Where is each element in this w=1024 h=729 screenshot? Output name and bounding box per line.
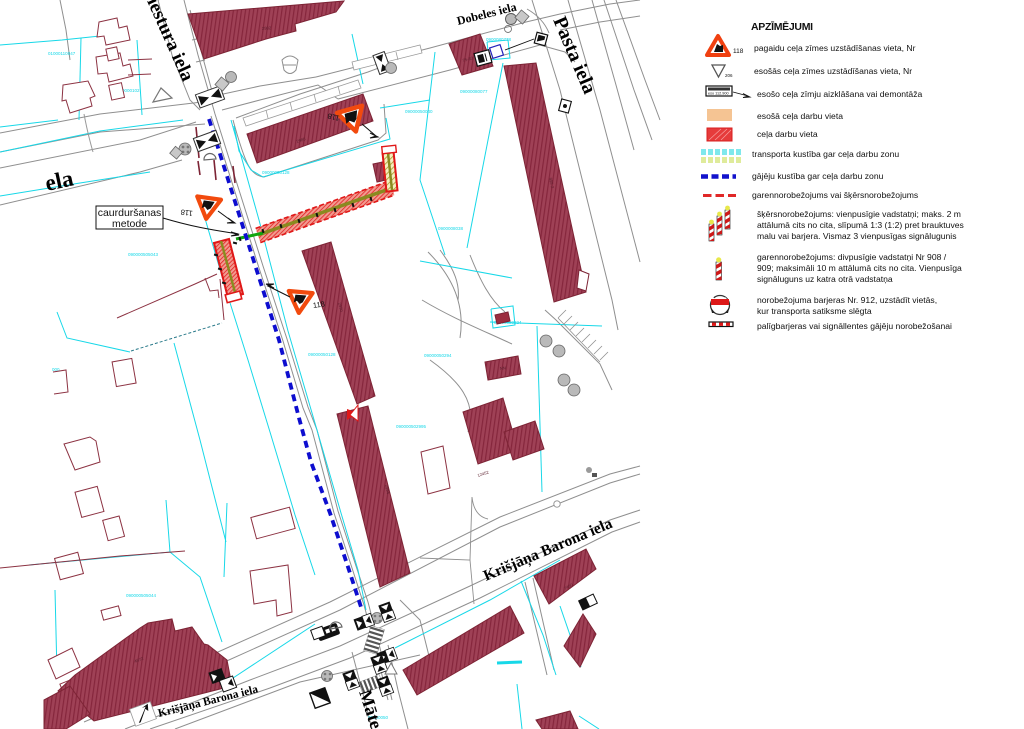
svg-text:909; maksimāli 10 m attālumā c: 909; maksimāli 10 m attālumā cits no cit… bbox=[757, 263, 962, 273]
svg-text:gājēju kustība gar ceļa darbu: gājēju kustība gar ceļa darbu zonu bbox=[752, 171, 884, 181]
svg-text:esošās ceļa zīmes uzstādīšanas: esošās ceļa zīmes uzstādīšanas vieta, Nr bbox=[754, 66, 912, 76]
svg-text:pagaidu ceļa zīmes uzstādīšana: pagaidu ceļa zīmes uzstādīšanas vieta, N… bbox=[754, 43, 916, 53]
svg-text:090000505043: 090000505043 bbox=[128, 252, 159, 257]
svg-text:kur transporta satiksme slēgta: kur transporta satiksme slēgta bbox=[757, 306, 872, 316]
svg-text:09000050128: 09000050128 bbox=[262, 170, 290, 175]
svg-text:09000050294: 09000050294 bbox=[424, 353, 452, 358]
svg-text:APZĪMĒJUMI: APZĪMĒJUMI bbox=[751, 21, 813, 33]
svg-text:šķērsnorobežojums: vienpusīgie: šķērsnorobežojums: vienpusīgie vadstatņi… bbox=[757, 209, 961, 219]
svg-text:malu vai barjera. Vismaz 3 vie: malu vai barjera. Vismaz 3 vienpusīgas s… bbox=[757, 231, 957, 241]
svg-text:norobežojuma barjeras Nr. 912,: norobežojuma barjeras Nr. 912, uzstādīt … bbox=[757, 295, 937, 305]
svg-text:09000080077: 09000080077 bbox=[460, 89, 488, 94]
svg-text:transporta kustība gar ceļa da: transporta kustība gar ceļa darbu zonu bbox=[752, 149, 899, 159]
svg-text:ceļa darbu vieta: ceļa darbu vieta bbox=[757, 129, 818, 139]
svg-text:01000110047: 01000110047 bbox=[48, 51, 76, 56]
svg-text:0900008038: 0900008038 bbox=[438, 226, 464, 231]
svg-text:118: 118 bbox=[312, 299, 325, 310]
svg-text:esošā ceļa darbu vieta: esošā ceļa darbu vieta bbox=[757, 111, 843, 121]
svg-text:esošo ceļa zīmju aizklāšana va: esošo ceļa zīmju aizklāšana vai demontāž… bbox=[757, 89, 922, 99]
svg-text:090000502995: 090000502995 bbox=[396, 424, 427, 429]
svg-text:0900080778: 0900080778 bbox=[486, 37, 512, 42]
svg-text:NN: NN bbox=[499, 365, 506, 371]
svg-text:09000050128: 09000050128 bbox=[308, 352, 336, 357]
svg-text:206: 206 bbox=[725, 73, 733, 78]
svg-text:2982: 2982 bbox=[262, 25, 272, 31]
svg-text:090000505044: 090000505044 bbox=[126, 593, 157, 598]
svg-text:attālumā cits no cita, slīpumā: attālumā cits no cita, slīpumā 1:3 (1:2)… bbox=[757, 220, 964, 230]
svg-text:garennorobežojums: divpusīgie: garennorobežojums: divpusīgie vadstatņi … bbox=[757, 252, 947, 262]
svg-text:signāluguns uz katra otrā vads: signāluguns uz katra otrā vadstatņa bbox=[757, 274, 893, 284]
svg-text:palīgbarjeras vai signāllentes: palīgbarjeras vai signāllentes gājēju no… bbox=[757, 321, 952, 331]
svg-text:118: 118 bbox=[180, 208, 193, 218]
svg-text:118: 118 bbox=[733, 48, 744, 55]
svg-text:eso 112.900: eso 112.900 bbox=[708, 92, 729, 96]
svg-text:garennorobežojums vai šķērsnor: garennorobežojums vai šķērsnorobežojums bbox=[752, 190, 918, 200]
svg-text:metode: metode bbox=[112, 218, 147, 230]
svg-text:09000050040: 09000050040 bbox=[405, 109, 433, 114]
